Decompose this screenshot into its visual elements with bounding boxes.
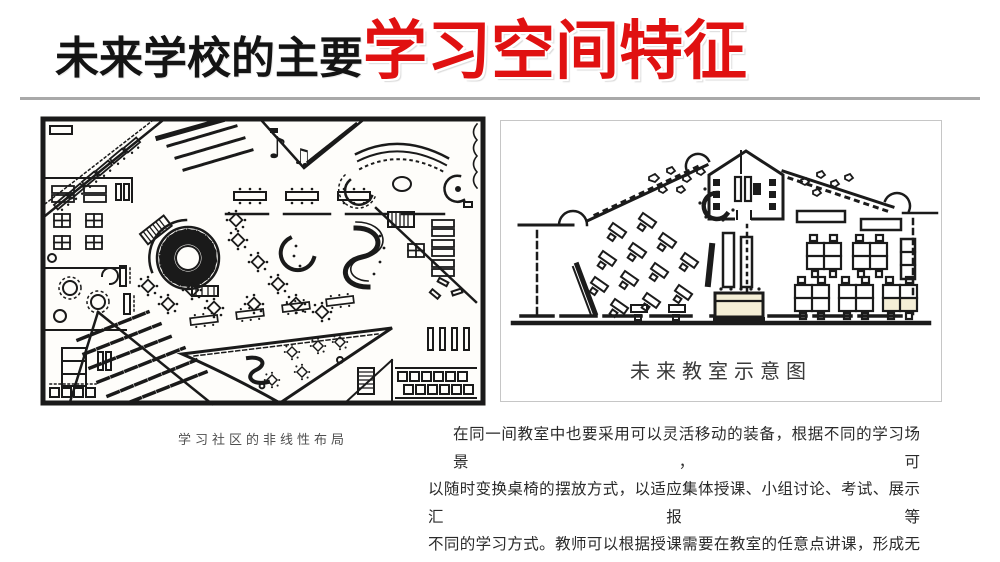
title-highlight: 学习空间特征	[363, 18, 747, 85]
left-figure-caption: 学习社区的非线性布局	[40, 429, 486, 448]
body-line: 以随时变换桌椅的摆放方式，以适应集体授课、小组讨论、考试、展示汇报等	[428, 476, 920, 531]
body-paragraph: 在同一间教室中也要采用可以灵活移动的装备，根据不同的学习场景，可 以随时变换桌椅…	[428, 421, 920, 562]
future-classroom-image: 未来教室示意图	[500, 120, 942, 402]
svg-text:♫: ♫	[292, 145, 312, 170]
body-line: 在同一间教室中也要采用可以灵活移动的装备，根据不同的学习场景，可	[428, 421, 920, 476]
title-prefix: 未来学校的主要	[55, 25, 363, 93]
slide-title: 未来学校的主要学习空间特征	[55, 18, 747, 93]
body-line: 不同的学习方式。教师可以根据授课需要在教室的任意点讲课，形成无边界的	[428, 531, 920, 562]
presentation-slide: 未来学校的主要学习空间特征	[0, 0, 1000, 562]
title-divider-line	[20, 97, 980, 100]
right-figure-caption: 未来教室示意图	[501, 355, 941, 384]
classroom-sketch	[501, 127, 941, 355]
svg-text:♪: ♪	[268, 131, 287, 166]
floorplan-sketch: ♪ ♫	[40, 116, 486, 406]
learning-community-floorplan-image: ♪ ♫	[40, 116, 486, 406]
